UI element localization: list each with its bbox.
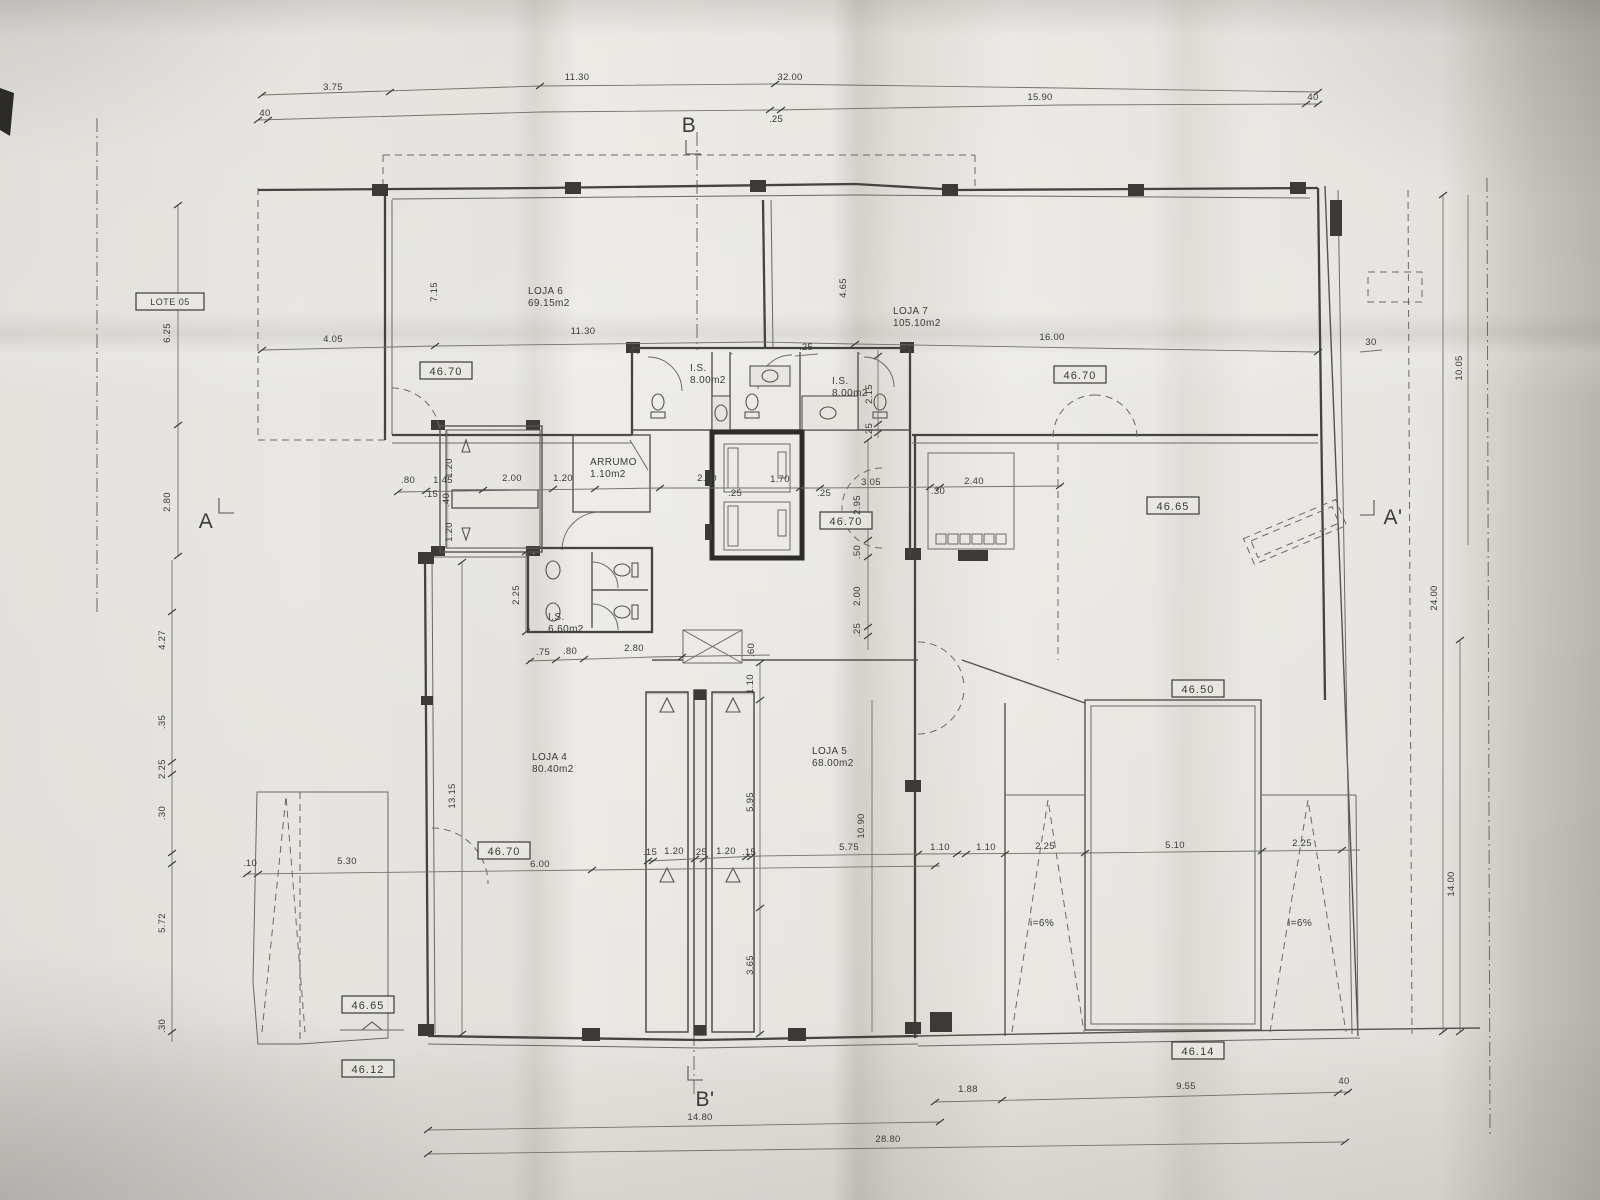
photographed-floor-plan: 46.70 46.70 46.70 46.65 46.50 46.70 46.6… <box>0 0 1600 1200</box>
room-name: I.S. <box>690 363 707 374</box>
dim-label: 11.30 <box>571 326 596 337</box>
dim-label: 40 <box>1307 92 1318 103</box>
boundary-lines <box>97 118 1490 1135</box>
section-letter-b-prime: B' <box>695 1088 714 1111</box>
room-area: 69.15m2 <box>528 298 570 309</box>
dim-label: 5.30 <box>337 856 357 867</box>
dim-label: 1.10 <box>930 842 950 853</box>
room-name: LOJA 4 <box>532 752 567 763</box>
level-badge: 46.70 <box>487 846 520 858</box>
sink-icon <box>802 396 858 430</box>
dim-label: .60 <box>746 643 757 657</box>
dim-label: 1.70 <box>770 474 790 485</box>
lot-label: LOTE 05 <box>150 297 190 307</box>
level-badge: 46.70 <box>429 366 462 378</box>
dim-label: 10.05 <box>1454 355 1465 380</box>
dim-label: .50 <box>852 545 863 559</box>
room-area: 1.10m2 <box>590 469 626 480</box>
dim-label: .35 <box>157 715 168 729</box>
dim-label: 1.20 <box>716 846 736 857</box>
room-area: 105.10m2 <box>893 318 941 329</box>
dim-label: .25 <box>728 488 742 499</box>
dim-label: 3.65 <box>745 955 756 975</box>
dim-label: .75 <box>536 647 550 658</box>
dim-label: 2.25 <box>511 585 522 605</box>
dim-label: 2.25 <box>1292 838 1312 849</box>
dim-label: 16.00 <box>1039 332 1064 343</box>
dim-label: 2.80 <box>162 492 173 512</box>
level-badge: 46.12 <box>351 1064 384 1076</box>
dim-label: 28.80 <box>875 1134 900 1145</box>
room-name: I.S. <box>548 612 565 623</box>
dim-label: .25 <box>817 488 831 499</box>
tree-symbol <box>262 796 305 1032</box>
dim-label: 4.65 <box>838 278 849 298</box>
dim-label: 15.90 <box>1027 92 1052 103</box>
dim-label: 4.27 <box>157 630 168 650</box>
level-badge: 46.14 <box>1181 1046 1214 1058</box>
dim-label: .25 <box>864 423 875 437</box>
section-letter-a: A <box>199 510 214 533</box>
dim-label: 3.05 <box>861 477 881 488</box>
dim-label: 9.55 <box>1176 1081 1196 1092</box>
dim-label: 6.00 <box>530 859 550 870</box>
ramp-slope-label: i=6% <box>1030 918 1054 929</box>
dim-label: 3.75 <box>323 82 343 93</box>
skylight-dashed <box>1244 500 1347 565</box>
elevator-core <box>705 432 802 558</box>
dim-label: 11.30 <box>565 72 590 83</box>
dim-label: 30 <box>1365 337 1376 348</box>
dim-label: .25 <box>769 114 783 125</box>
ramp-slope-label: i=6% <box>1288 918 1312 929</box>
dim-label: 5.75 <box>839 842 859 853</box>
dim-label: 32.00 <box>777 72 802 83</box>
dim-label: .25 <box>852 623 863 637</box>
level-badge: 46.70 <box>829 516 862 528</box>
dim-label: .30 <box>157 1019 168 1033</box>
technical-room <box>928 453 1014 561</box>
arrumo-room <box>562 435 650 550</box>
dim-label: .30 <box>157 806 168 820</box>
ramp-symbol <box>1270 800 1346 1032</box>
ramp-symbol <box>1012 800 1084 1032</box>
dim-label: 2.80 <box>624 643 644 654</box>
dim-label: 4.05 <box>323 334 343 345</box>
room-area: 6.60m2 <box>548 624 584 635</box>
room-area: 68.00m2 <box>812 758 854 769</box>
dim-label: 1.20 <box>553 473 573 484</box>
room-name: I.S. <box>832 376 849 387</box>
photo-edge-mark <box>0 88 14 136</box>
dim-label: 10.90 <box>856 813 867 838</box>
dim-label: 2.15 <box>864 384 875 404</box>
floor-plan-drawing: 46.70 46.70 46.70 46.65 46.50 46.70 46.6… <box>0 0 1600 1200</box>
room-area: 80.40m2 <box>532 764 574 775</box>
dim-label: .15 <box>742 847 756 858</box>
room-area: 8.00m2 <box>690 375 726 386</box>
door-arc <box>562 512 600 550</box>
room-name: ARRUMO <box>590 457 637 468</box>
dim-label: 5.10 <box>1165 840 1185 851</box>
dim-label: 5.72 <box>157 913 168 933</box>
dim-label: 1.10 <box>976 842 996 853</box>
level-badge: 46.50 <box>1181 684 1214 696</box>
columns <box>372 180 1306 1041</box>
sink-icon <box>712 396 730 430</box>
dim-label: .30 <box>931 486 945 497</box>
room-name: LOJA 5 <box>812 746 847 757</box>
dim-label: .40 <box>441 493 452 507</box>
dim-label: 2.25 <box>157 759 168 779</box>
bathroom-mid <box>528 548 652 632</box>
dim-label: 5.95 <box>745 792 756 812</box>
dim-label: 1.10 <box>745 674 756 694</box>
dim-label: 24.00 <box>1429 585 1440 610</box>
dim-label: 40 <box>1338 1076 1349 1087</box>
dim-label: 2.00 <box>502 473 522 484</box>
dim-label: .15 <box>643 847 657 858</box>
dim-label: 1.88 <box>958 1084 978 1095</box>
dim-label: .25 <box>799 342 813 353</box>
dim-label: 14.00 <box>1446 871 1457 896</box>
dim-label: 2.10 <box>697 473 717 484</box>
dim-label: .80 <box>401 475 415 486</box>
dim-label: 2.25 <box>1035 841 1055 852</box>
dim-label: .15 <box>424 489 438 500</box>
dim-label: 14.80 <box>687 1112 712 1123</box>
shaft-crossed <box>683 630 742 663</box>
main-stairs <box>646 690 754 1035</box>
sink-icon <box>750 366 790 386</box>
dim-label: .25 <box>693 847 707 858</box>
hatched-strip-right <box>1325 180 1480 1038</box>
dim-label: 13.15 <box>447 783 458 808</box>
dim-label: 40 <box>259 108 270 119</box>
dim-label: 6.25 <box>162 323 173 343</box>
dim-label: 2.95 <box>852 495 863 515</box>
dim-label: 7.15 <box>429 282 440 302</box>
dim-label: 1.20 <box>664 846 684 857</box>
level-badge: 46.70 <box>1063 370 1096 382</box>
room-name: LOJA 6 <box>528 286 563 297</box>
section-letter-a-prime: A' <box>1383 506 1402 529</box>
dim-label: 2.00 <box>852 586 863 606</box>
section-letter-b: B <box>682 114 697 137</box>
dim-label: 1.20 <box>444 522 455 542</box>
level-badge: 46.65 <box>351 1000 384 1012</box>
room-name: LOJA 7 <box>893 306 928 317</box>
dimension-labels: 3.75 11.30 32.00 40 .25 15.90 40 4.05 11… <box>157 72 1465 1145</box>
dim-label: .10 <box>243 858 257 869</box>
section-letters: B B' A A' <box>199 114 1403 1111</box>
stair-block-left <box>440 426 542 552</box>
room-area: 8.00m2 <box>832 388 868 399</box>
dim-label: 2.40 <box>964 476 984 487</box>
dim-label: .80 <box>563 646 577 657</box>
dim-label: 1.20 <box>444 458 455 478</box>
level-badge: 46.65 <box>1156 501 1189 513</box>
